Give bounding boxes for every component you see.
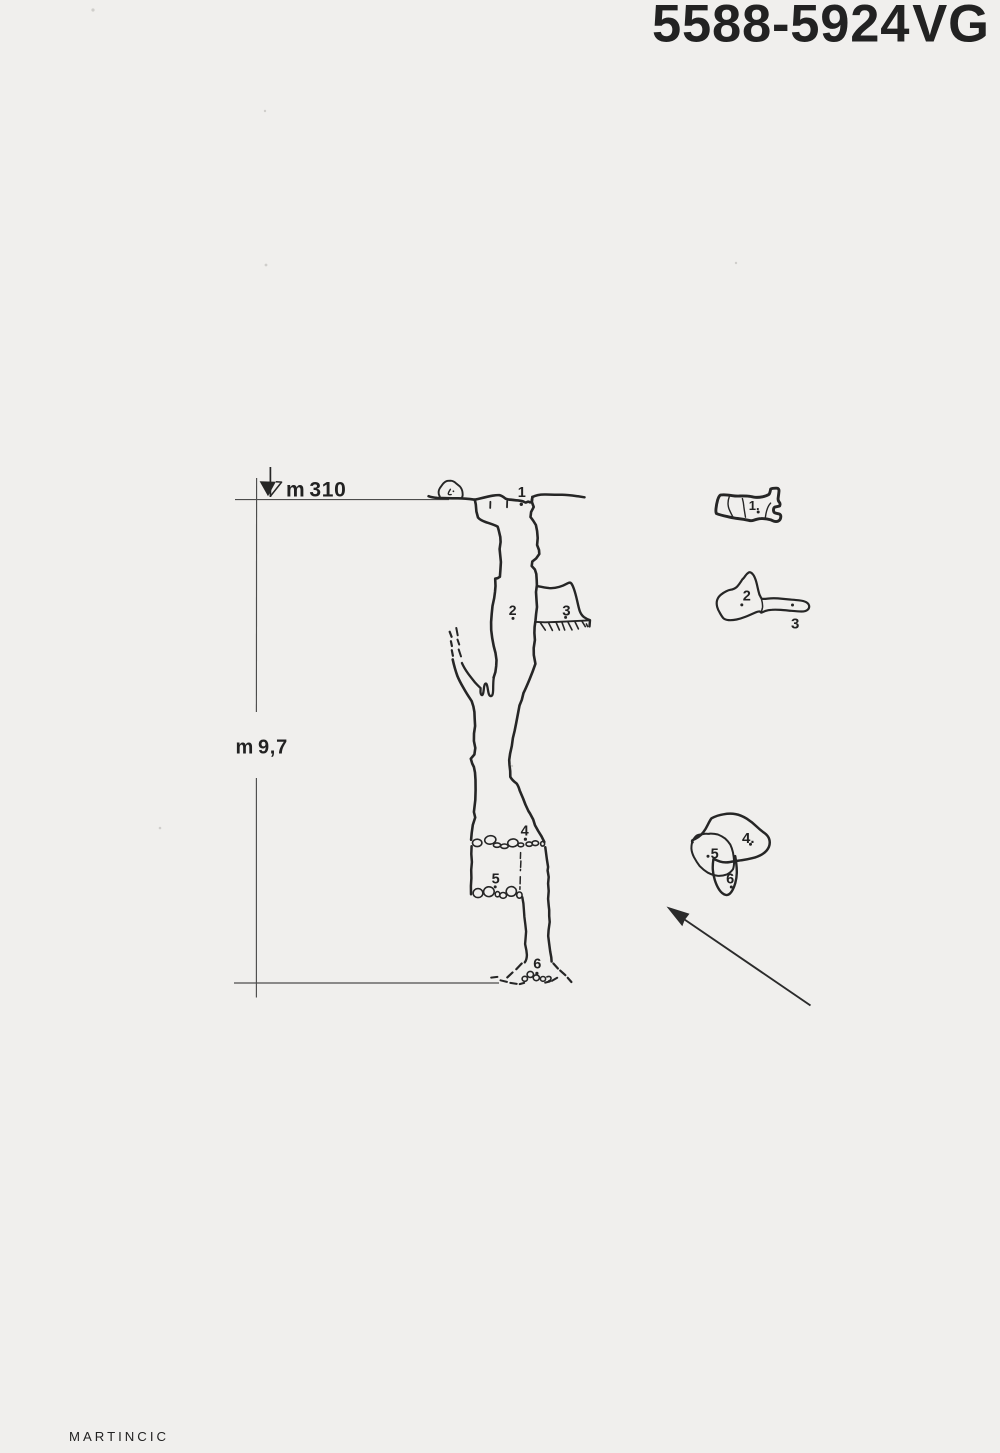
svg-text:5: 5 (711, 846, 719, 862)
svg-text:4: 4 (521, 823, 529, 839)
svg-text:4.: 4. (742, 830, 755, 847)
svg-text:MARTINCIC: MARTINCIC (69, 1429, 169, 1444)
svg-text:2: 2 (509, 602, 517, 618)
svg-text:1: 1 (518, 485, 526, 501)
svg-text:5588-5924VG: 5588-5924VG (652, 0, 990, 54)
svg-text:6: 6 (533, 957, 541, 973)
svg-text:m9,7: m9,7 (236, 737, 288, 759)
svg-text:6: 6 (726, 871, 734, 887)
svg-text:2: 2 (743, 588, 751, 604)
svg-text:3: 3 (791, 616, 799, 633)
svg-text:m310: m310 (286, 479, 347, 502)
svg-text:5: 5 (492, 872, 500, 888)
